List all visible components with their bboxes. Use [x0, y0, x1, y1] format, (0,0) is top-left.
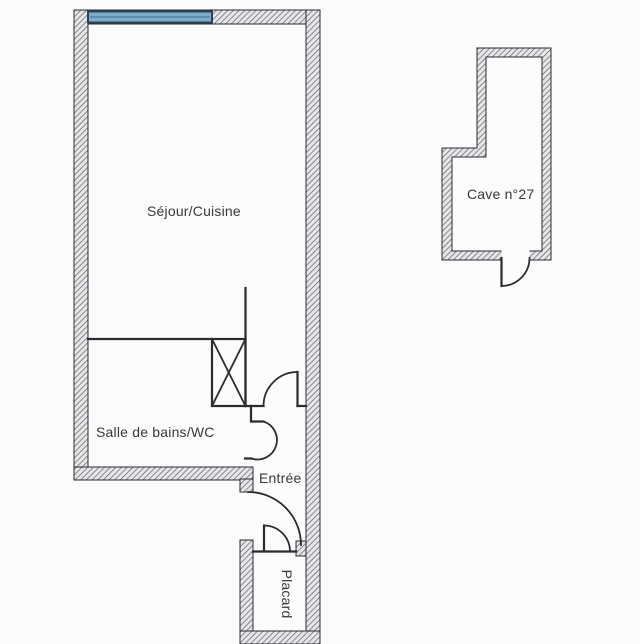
- cave-walls: [442, 48, 551, 260]
- placard-door-arc: [264, 526, 290, 552]
- bathroom-door-leaf: [251, 406, 264, 422]
- placard-bottom-wall: [240, 631, 320, 644]
- bathroom-door-arc: [252, 422, 277, 460]
- sejour-door-arc: [264, 372, 298, 406]
- placard-label: Placard: [279, 570, 295, 619]
- entree-label: Entrée: [259, 470, 301, 486]
- placard-left-wall: [240, 540, 253, 644]
- cave-door-opening: [502, 250, 530, 262]
- floor-plan-drawing: [0, 0, 640, 644]
- sejour-label: Séjour/Cuisine: [147, 203, 241, 219]
- floor-plan: Séjour/Cuisine Salle de bains/WC Entrée …: [0, 0, 640, 644]
- floor-plan-page: { "colors": { "background": "#fcfcfc", "…: [0, 0, 640, 644]
- entry-step-block: [240, 479, 253, 492]
- bathroom-bottom-wall: [74, 467, 253, 480]
- entrance-door-arc: [248, 492, 301, 545]
- right-wall: [306, 10, 320, 644]
- bathroom-label: Salle de bains/WC: [96, 424, 215, 440]
- left-wall: [74, 10, 88, 480]
- cave-label: Cave n°27: [467, 186, 534, 202]
- shaft-cross: [212, 339, 246, 406]
- cave-door-arc: [502, 258, 530, 286]
